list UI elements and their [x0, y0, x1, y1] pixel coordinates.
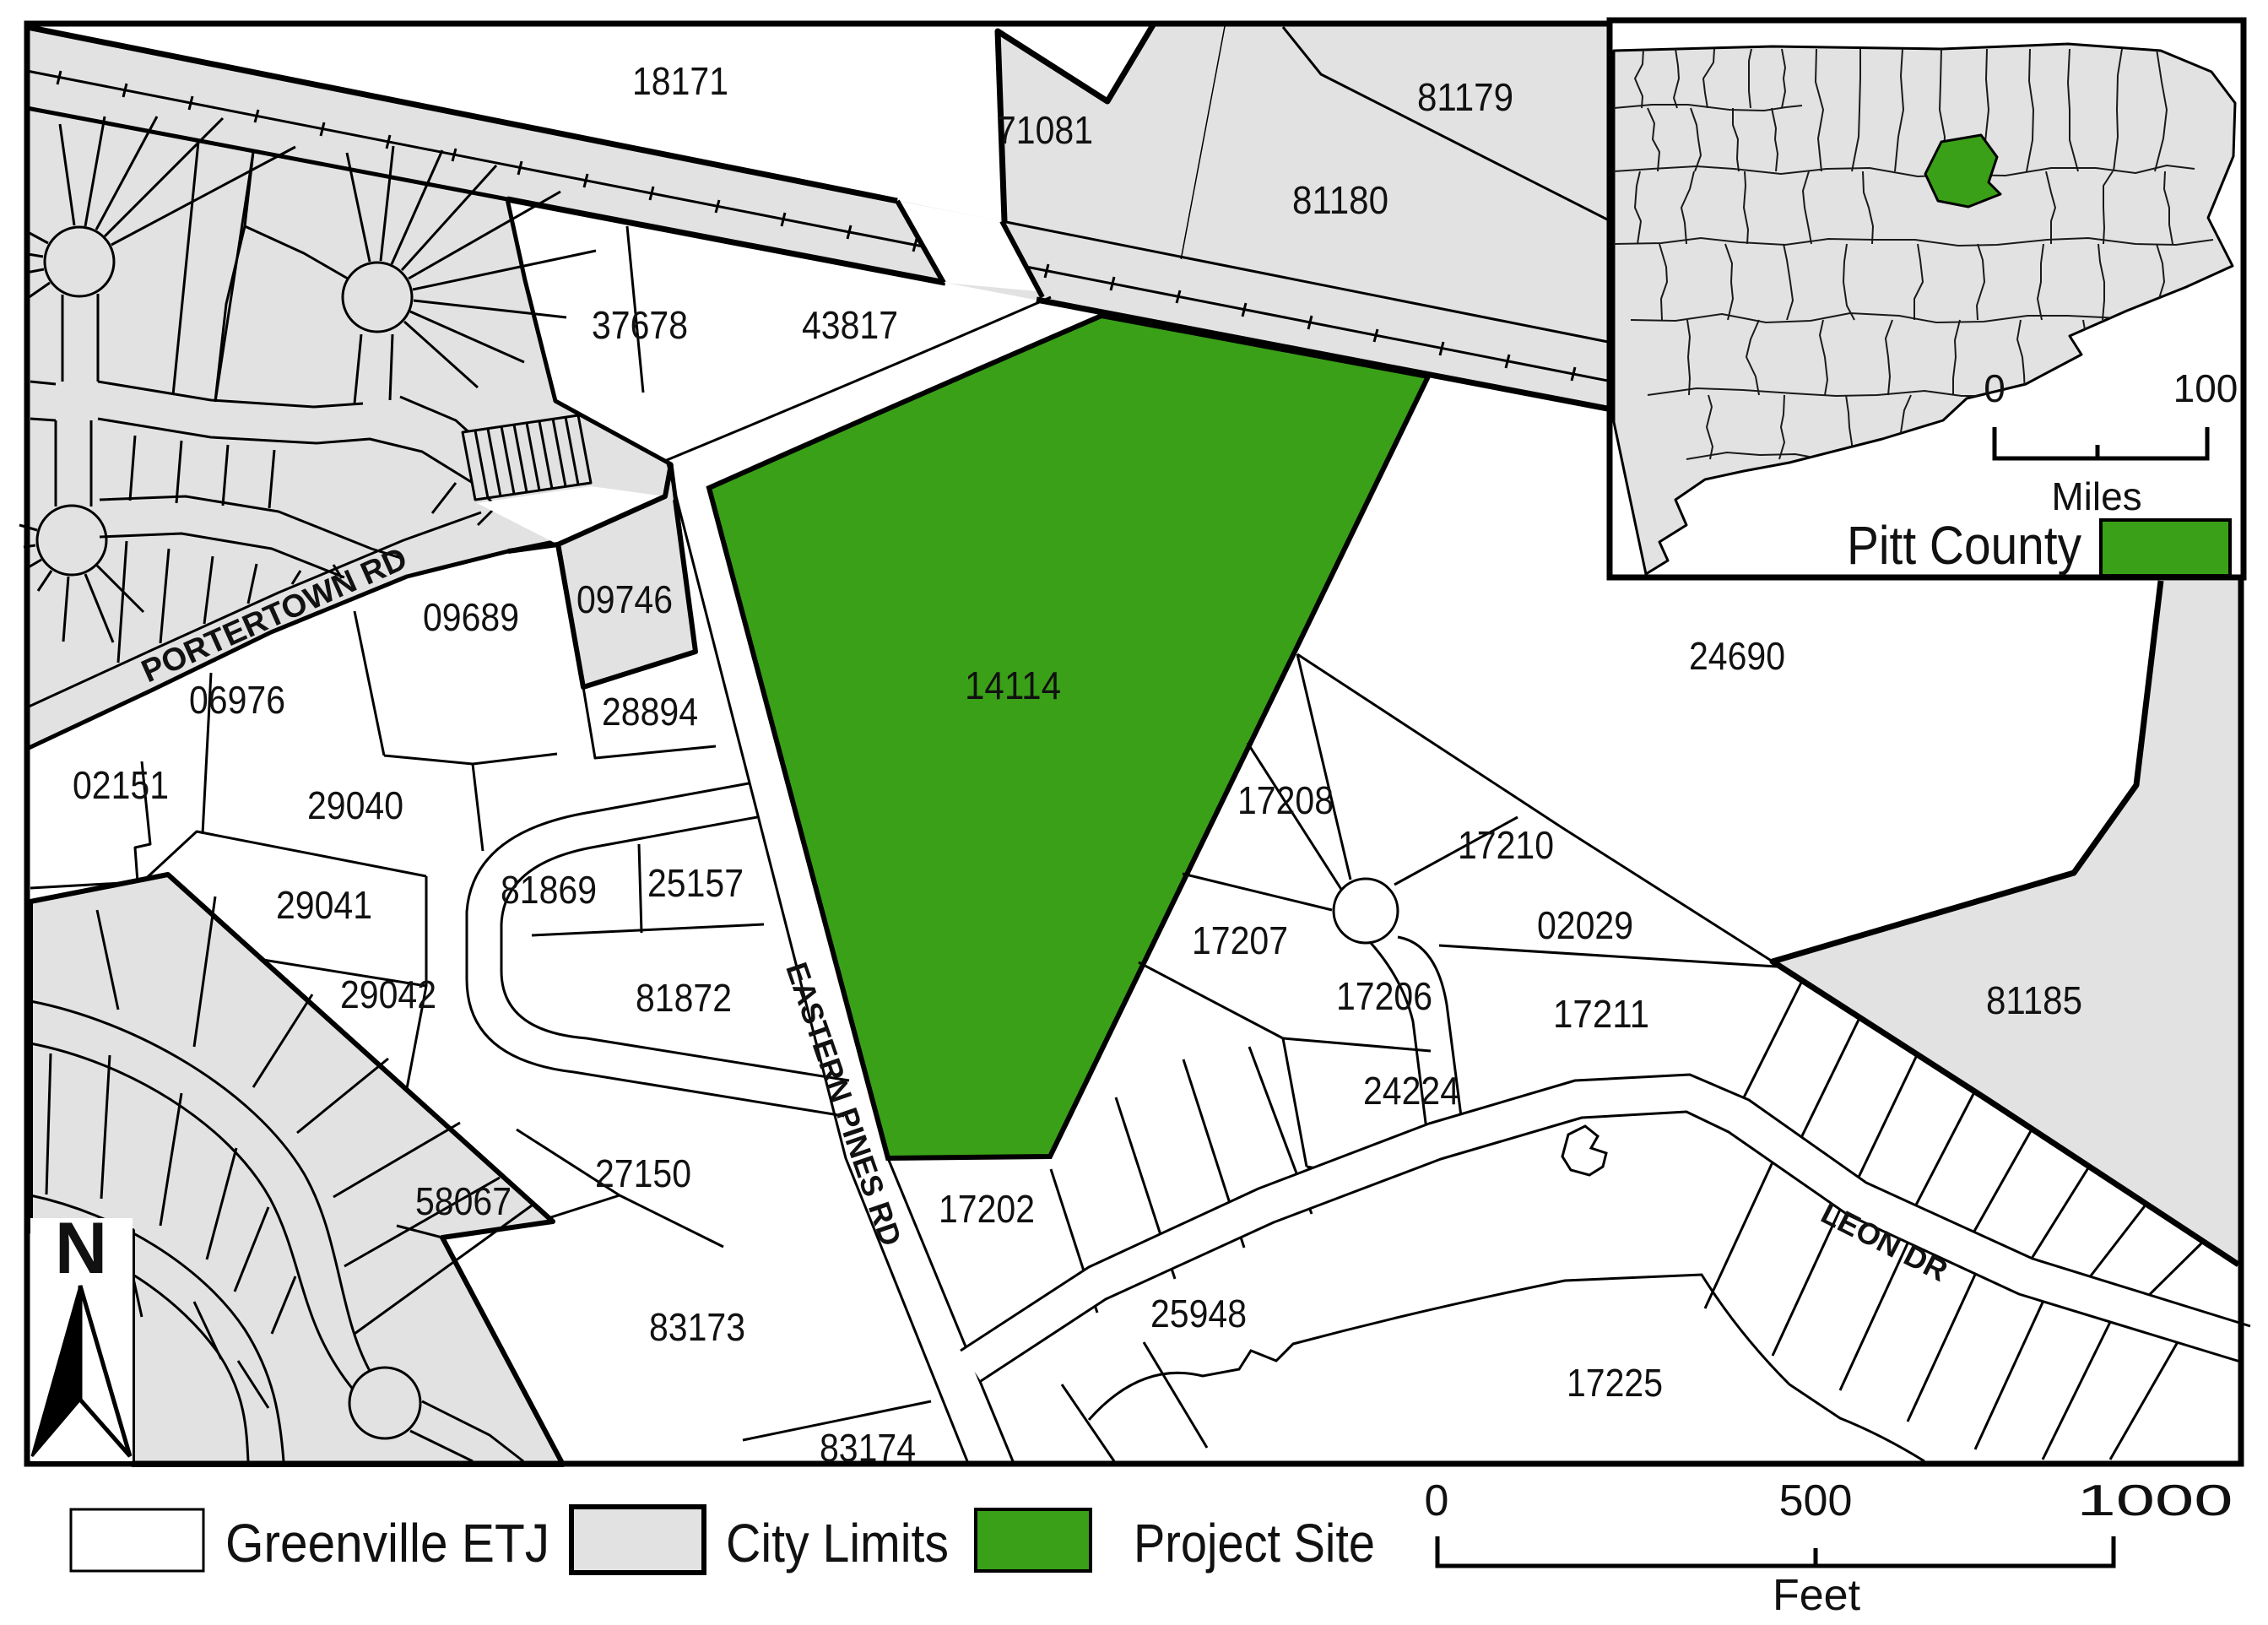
svg-text:17202: 17202 [939, 1187, 1035, 1231]
svg-text:25157: 25157 [647, 861, 744, 905]
svg-text:Feet: Feet [1773, 1571, 1861, 1620]
svg-text:1000: 1000 [2077, 1476, 2233, 1525]
svg-text:06976: 06976 [189, 678, 285, 722]
svg-text:17210: 17210 [1458, 823, 1554, 867]
svg-text:83173: 83173 [649, 1305, 745, 1349]
svg-text:02151: 02151 [73, 763, 169, 807]
svg-text:71081: 71081 [997, 108, 1093, 152]
svg-text:Project Site: Project Site [1134, 1513, 1375, 1574]
svg-text:24224: 24224 [1363, 1069, 1459, 1113]
svg-text:25948: 25948 [1150, 1292, 1247, 1335]
svg-text:29040: 29040 [307, 783, 403, 827]
svg-text:37678: 37678 [592, 303, 688, 347]
svg-text:Miles: Miles [2051, 474, 2141, 518]
svg-text:09689: 09689 [423, 595, 519, 639]
svg-text:81185: 81185 [1986, 978, 2082, 1022]
svg-text:81872: 81872 [636, 976, 732, 1020]
svg-text:N: N [55, 1208, 107, 1289]
svg-text:17206: 17206 [1336, 974, 1432, 1018]
svg-text:17225: 17225 [1567, 1361, 1663, 1405]
svg-text:100: 100 [2173, 366, 2238, 410]
svg-text:43817: 43817 [802, 303, 898, 347]
svg-text:City Limits: City Limits [726, 1513, 949, 1574]
svg-text:14114: 14114 [965, 664, 1061, 707]
svg-text:29041: 29041 [276, 883, 372, 927]
svg-text:500: 500 [1779, 1476, 1853, 1525]
svg-text:81180: 81180 [1292, 178, 1388, 222]
svg-text:28894: 28894 [602, 690, 698, 734]
svg-text:81869: 81869 [501, 868, 597, 912]
svg-text:0: 0 [1425, 1476, 1449, 1525]
svg-text:29042: 29042 [340, 972, 436, 1016]
svg-text:58067: 58067 [415, 1179, 512, 1223]
svg-text:02029: 02029 [1537, 903, 1633, 947]
svg-text:24690: 24690 [1689, 634, 1785, 678]
svg-text:09746: 09746 [576, 577, 673, 621]
svg-text:Pitt County: Pitt County [1847, 515, 2081, 576]
svg-text:Greenville ETJ: Greenville ETJ [225, 1513, 549, 1574]
svg-text:81179: 81179 [1417, 75, 1513, 119]
svg-text:17208: 17208 [1237, 778, 1334, 822]
svg-text:0: 0 [1984, 366, 2005, 410]
svg-text:27150: 27150 [595, 1151, 691, 1195]
svg-text:83174: 83174 [820, 1426, 916, 1470]
svg-text:17211: 17211 [1553, 992, 1649, 1036]
svg-text:18171: 18171 [632, 59, 728, 103]
svg-text:17207: 17207 [1192, 918, 1288, 962]
